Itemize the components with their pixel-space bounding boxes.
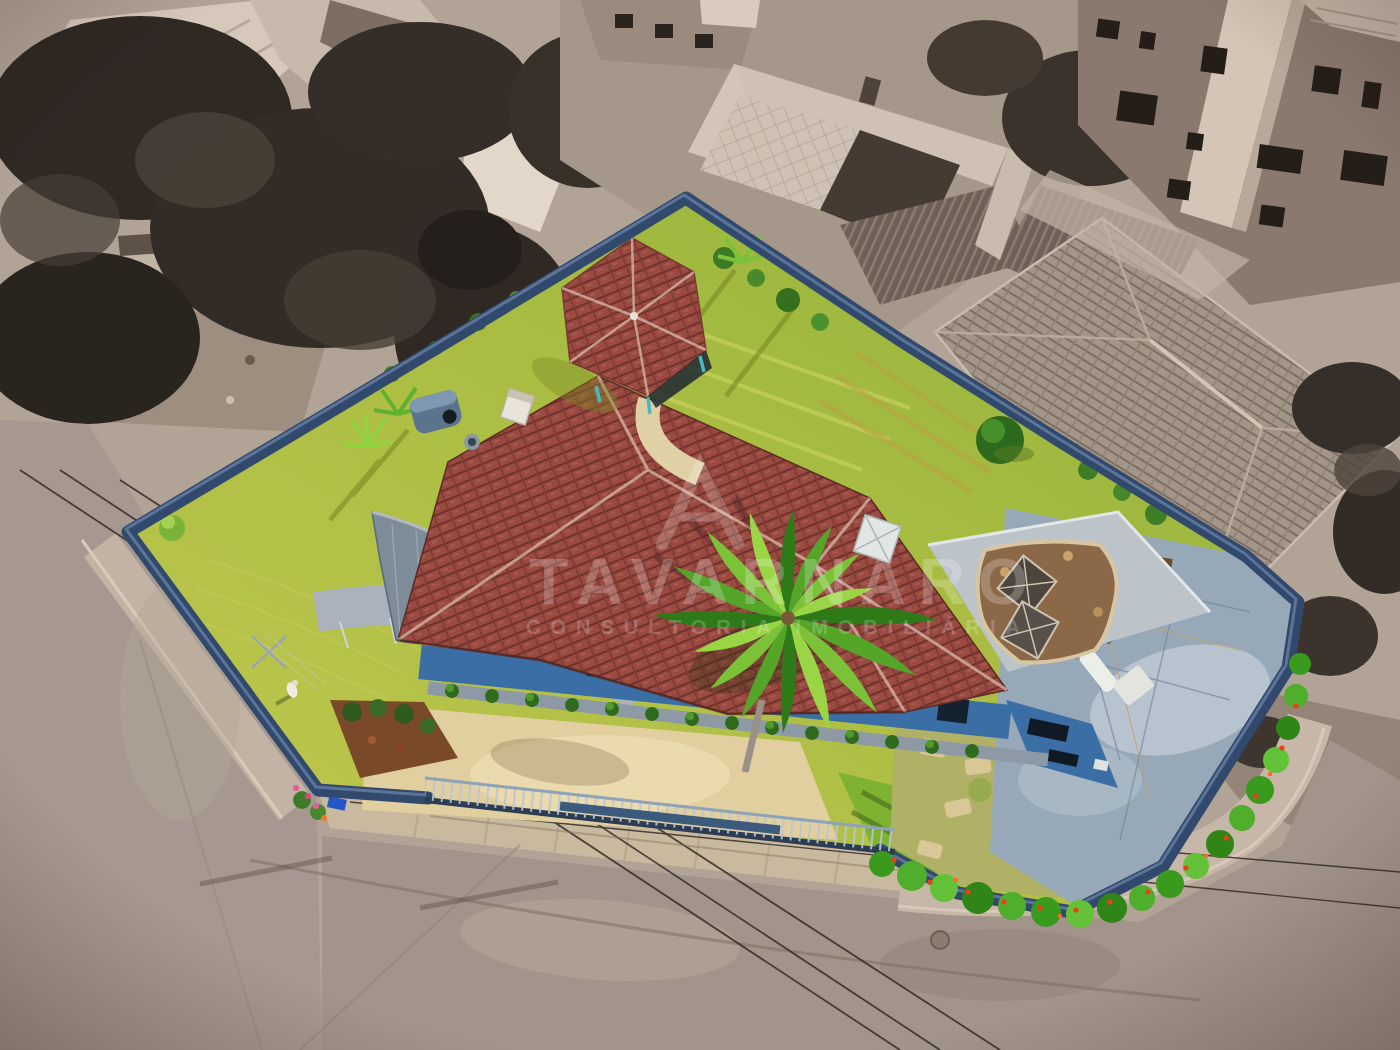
vignette [0,0,1400,1050]
watermark-brand: TAVARNARO [529,546,1041,618]
aerial-drone-photo: TAVARNARO CONSULTORIA IMOBILIÁRIA [0,0,1400,1050]
watermark-tagline: CONSULTORIA IMOBILIÁRIA [526,616,1030,638]
photo-canvas: TAVARNARO CONSULTORIA IMOBILIÁRIA [0,0,1400,1050]
